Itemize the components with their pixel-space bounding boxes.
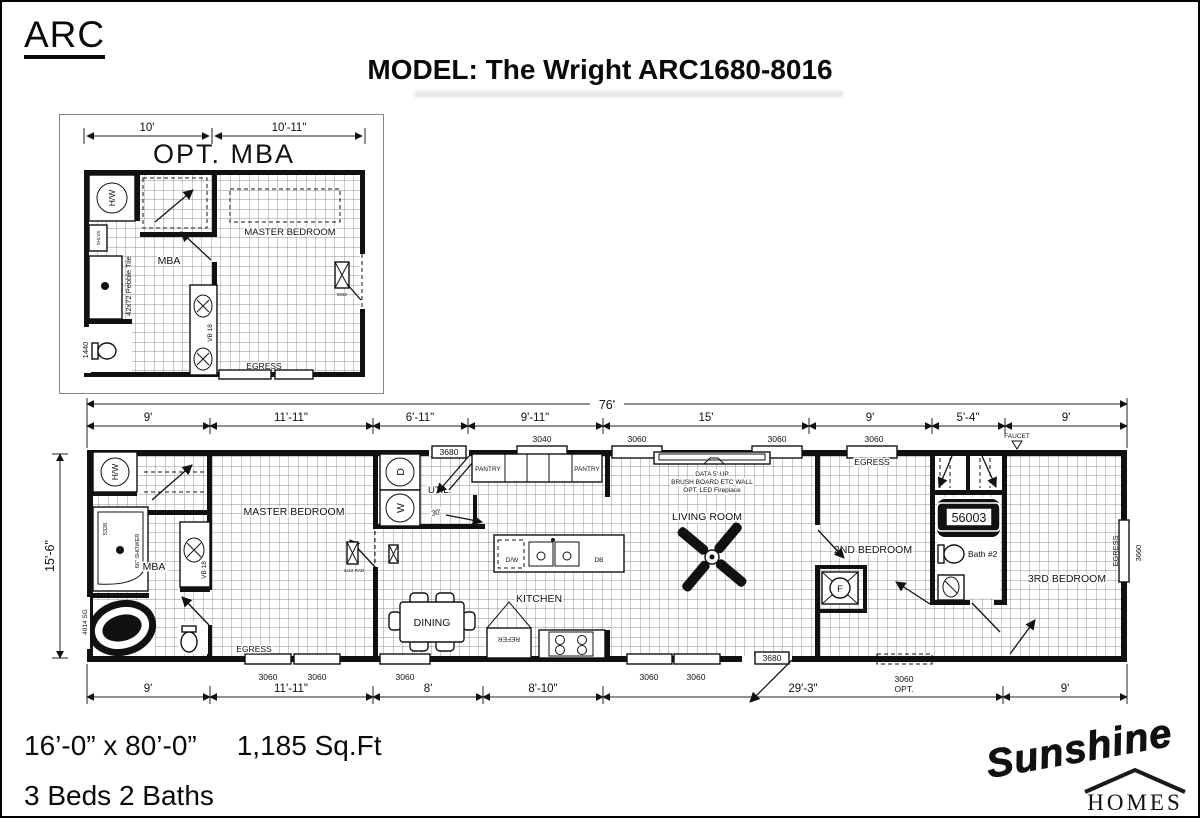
rear-door-swing [750,660,792,702]
bottom-dim-1: 11'-11" [274,683,308,695]
series-name: ARC [24,16,105,59]
washer-label: W [395,503,407,513]
shower-code: 5328 [103,523,109,535]
left-dimension: 15'-6" [43,454,68,658]
top-dimensions: 9' 11'-11" 6'-11" 9'-11" 15' 9' 5'-4" 9' [87,412,1127,434]
range [539,630,605,658]
window-label-3040: 3040 [533,434,552,444]
shower: 5328 66" SHOWER [93,507,148,591]
bottom-dim-5: 9' [1061,683,1070,695]
left-dim-label: 15'-6" [43,540,57,572]
pantry2-label: PANTRY [574,466,600,473]
inset-window-code: 5032 [337,292,348,297]
rad-label: 1x12 RAD [344,568,365,573]
top-dim-4: 15' [699,412,714,424]
inset-hw-label: H/W [107,190,117,207]
egress-master-label: EGRESS [236,644,272,654]
living-label: LIVING ROOM [672,511,742,523]
beds-baths: 3 Beds 2 Baths [24,780,214,812]
water-heater: H/W [93,452,137,492]
furnace: F [822,572,858,604]
top-dim-0: 9' [144,412,153,424]
egress-bed2-label: EGRESS [854,457,890,467]
inset-master-label: MASTER BEDROOM [244,227,335,238]
bath2-label: Bath #2 [968,549,998,559]
pantry1-label: PANTRY [475,466,501,473]
window-label-b6: 3060 [895,674,914,684]
bottom-dim-3: 8'-10" [528,683,557,695]
dining-label: DINING [414,617,451,629]
fireplace-note-1: DATA 5' UP [695,471,729,478]
bottom-dim-4: 29'-3" [788,683,817,695]
inset-toilet-code: 1440 [81,342,90,359]
window-label-b1: 3060 [308,672,327,682]
window-right-label: 3660 [1134,545,1143,562]
inset-dim-right: 10'-11" [272,122,307,134]
sunshine-homes-logo: Sunshine HOMES [977,720,1192,816]
inset-shelves: SHLVS [89,225,107,251]
floorplan-sheet: ARC MODEL: The Wright ARC1680-8016 10' 1… [0,0,1200,818]
dimension-ticks [87,664,1127,704]
spec-line: 16’-0” x 80’-0”1,185 Sq.Ft [24,730,382,762]
main-floorplan: 76' 9' 11'-11" 6'-11" 9'-11" 15' [32,390,1172,720]
window-label-b4: 3060 [687,672,706,682]
top-dim-1: 11'-11" [274,412,308,424]
bottom-dimensions: 9' 11'-11" 8' 8'-10" 29'-3" 9' [87,664,1127,704]
dining-set: DINING [389,593,475,651]
bottom-dim-2: 8' [424,683,433,695]
inset-title: OPT. MBA [153,139,295,169]
top-dim-5: 9' [866,412,875,424]
door-label-3680-bottom: 3680 [763,653,782,663]
refer-label: REFER [498,635,520,642]
inset-mba-label: MBA [158,255,181,267]
master-label: MASTER BEDROOM [244,506,345,518]
inset-vanity: VB 18 [190,285,217,375]
shower-label: 66" SHOWER [135,534,141,568]
bottom-dim-0: 9' [144,683,153,695]
window-label-3060-c: 3060 [865,434,884,444]
dw-label: D/W [506,557,520,564]
mba-toilet [178,622,208,654]
tub-sg-label: 4014 SG [82,609,89,635]
window-label-3060-b: 3060 [768,434,787,444]
fireplace-note-2: BRUSH BOARD ETC WALL [671,479,753,486]
inset-pebble-label: 42x72 Pebble Tile [124,256,133,316]
window-label-b0: 3060 [259,672,278,682]
inset-opt-mba: 10' 10'-11" OPT. MBA H/W SHLVS [59,114,384,394]
top-dim-6: 5'-4" [957,412,980,424]
door-label-3680-top: 3680 [440,447,459,457]
window-label-3060-a: 3060 [628,434,647,444]
home-sqft: 1,185 Sq.Ft [237,730,382,761]
pantry: PANTRY PANTRY [472,454,602,482]
page-title: MODEL: The Wright ARC1680-8016 [367,54,832,86]
top-dim-3: 9'-11" [521,412,549,424]
logo-roof-icon [1085,770,1185,792]
inset-shower: 42x72 Pebble Tile [89,256,133,319]
hw-label: H/W [110,464,120,481]
faucet-arrow [1012,441,1022,449]
tub2-code: 56003 [952,511,987,525]
fireplace-note-3: OPT. LED Fireplace [683,487,741,494]
window-label-b2: 3060 [396,672,415,682]
home-size: 16’-0” x 80’-0” [24,730,197,761]
kitchen-island: D/W DB [494,535,624,572]
mba-label: MBA [143,561,166,573]
bed2-label: 2ND BEDROOM [834,544,912,556]
inset-water-heater: H/W [89,175,135,221]
window-label-b3: 3060 [640,672,659,682]
mba-vanity: VB 18 [180,522,210,587]
logo-subtext: HOMES [1087,790,1183,815]
dryer-label: D [395,468,407,476]
overall-dim-label: 76' [599,398,615,412]
bed3-label: 3RD BEDROOM [1028,573,1106,585]
vb-label: VB 18 [201,561,208,579]
inset-toilet: 1440 [80,324,132,373]
faucet-label: FAUCET [1004,433,1030,440]
egress-right-label: EGRESS [1111,535,1120,566]
inset-dim-left: 10' [140,122,155,134]
top-dim-2: 6'-11" [406,412,434,424]
kitchen-label: KITCHEN [516,593,562,605]
furnace-label: F [837,584,843,595]
window-label-opt: OPT. [895,684,914,694]
inset-shlvs-label: SHLVS [96,231,101,245]
db-label: DB [594,557,603,564]
inset-vb-label: VB 18 [207,324,214,342]
erased-subtitle [415,91,843,97]
top-dim-7: 9' [1062,412,1071,424]
